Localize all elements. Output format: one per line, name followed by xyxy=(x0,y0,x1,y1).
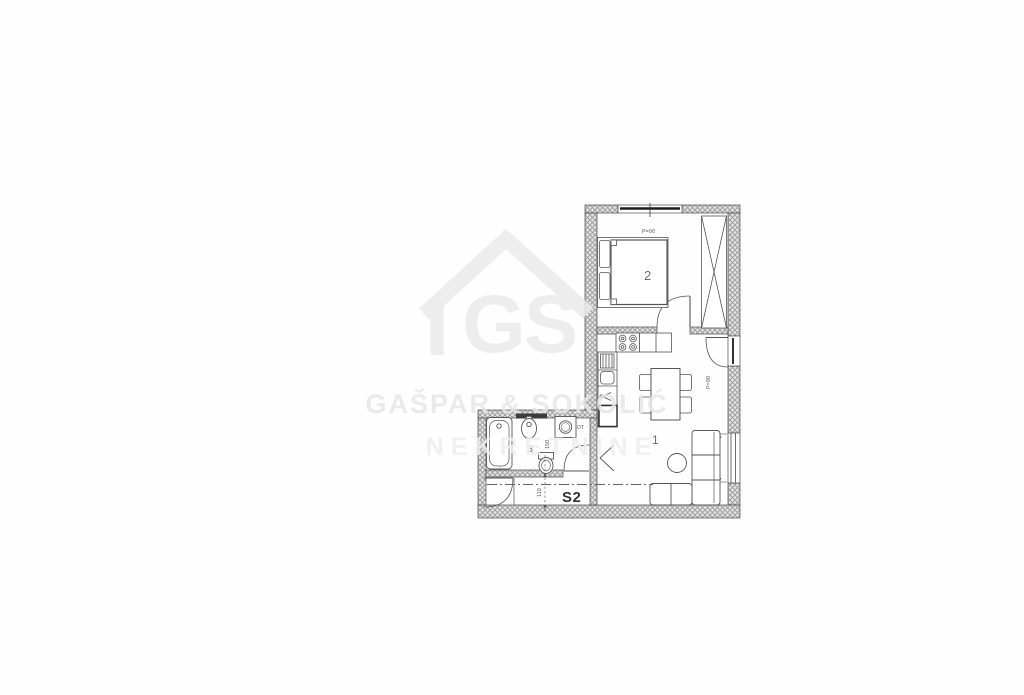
wall-top-right xyxy=(682,205,740,213)
wall-top-left xyxy=(585,205,618,213)
kitchen-counter xyxy=(640,333,672,352)
wall-right-upper xyxy=(728,213,740,336)
bed-pillow-top xyxy=(600,241,611,268)
bed-corner-mark-1 xyxy=(611,240,617,246)
wall-bottom xyxy=(478,505,740,518)
sofa-vertical xyxy=(692,431,720,506)
bedroom-window-parapet-label: P=90 xyxy=(642,229,655,235)
chair-right-2 xyxy=(680,397,692,413)
bed-mattress xyxy=(611,240,667,305)
bedroom-furniture xyxy=(598,216,727,328)
bed-corner-mark-2 xyxy=(611,299,617,305)
chair-right-1 xyxy=(680,375,692,391)
floor-plan: P=90 P=90 90 xyxy=(0,0,1024,695)
kitchen-sink xyxy=(601,372,615,385)
living-room-furniture xyxy=(650,431,720,506)
balcony-window-parapet-label: P=90 xyxy=(706,376,712,389)
wall-right-lower xyxy=(728,483,740,505)
watermark-logo-letters: GS xyxy=(462,279,576,370)
appliance-label: OT xyxy=(577,425,584,431)
hall-width-label: 110 xyxy=(537,488,543,497)
watermark-company-name: GAŠPAR & SOKOLIĆ xyxy=(365,388,668,419)
coffee-table xyxy=(668,454,687,473)
watermark-company-subtitle: NEKRETNINE xyxy=(426,433,659,461)
balcony-window-swing-arc xyxy=(706,338,728,368)
room-number-bedroom: 2 xyxy=(644,268,651,283)
wall-bathroom-right xyxy=(590,418,597,505)
bed-pillow-bottom xyxy=(600,273,611,300)
wall-bathroom-left xyxy=(478,418,486,505)
living-window xyxy=(728,433,740,483)
wall-right-mid xyxy=(728,366,740,433)
entry-door-swing-arc xyxy=(484,478,513,507)
unit-label: S2 xyxy=(562,489,581,506)
screenshot-root: P=90 P=90 90 xyxy=(0,0,1024,695)
balcony-window xyxy=(728,336,740,366)
